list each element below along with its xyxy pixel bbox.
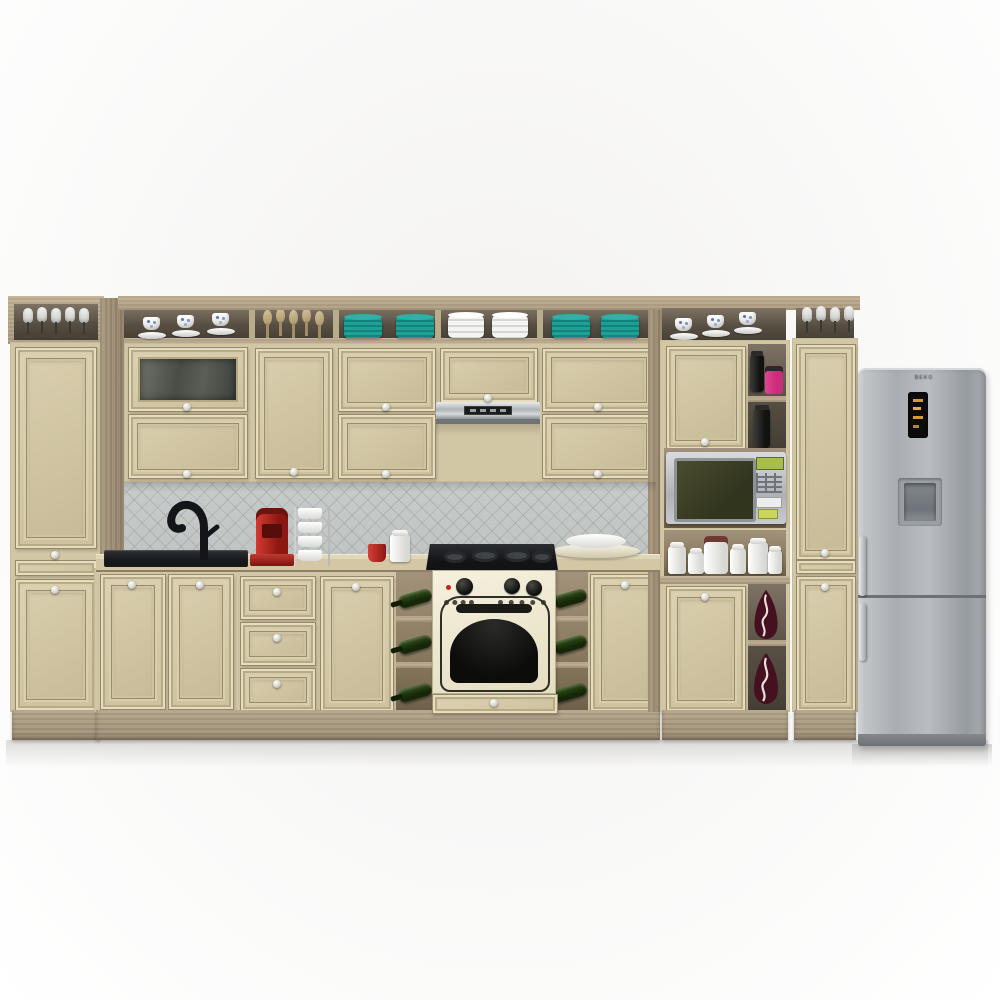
cabinet-knob (701, 593, 709, 601)
microwave-button (756, 497, 782, 508)
niche-shelf (748, 640, 786, 646)
teacup (702, 315, 730, 337)
drawer (240, 622, 316, 666)
display-segment (913, 425, 919, 428)
sink-base-door (168, 574, 234, 710)
tall-pantry-door (796, 344, 856, 560)
shelf-divider (435, 308, 441, 340)
white-bowl-stack (492, 315, 528, 338)
plinth (12, 710, 100, 740)
magenta-canister (765, 366, 783, 394)
cabinet-knob (382, 470, 390, 478)
burner (504, 549, 530, 562)
upper-single-door (255, 348, 333, 479)
water-dispenser (898, 478, 942, 526)
wine-glass (50, 308, 62, 338)
maroon-vase (751, 650, 781, 706)
sink-base-door (100, 574, 166, 710)
drawer (240, 576, 316, 620)
white-canister (730, 548, 746, 574)
white-canister (668, 546, 686, 574)
wine-glass (843, 306, 855, 336)
burner (472, 549, 498, 562)
teacup (670, 318, 698, 340)
shelf-divider (249, 308, 255, 340)
white-canister (768, 550, 782, 574)
wine-bottle (397, 588, 433, 610)
oven-knob (526, 580, 542, 596)
niche-shelf (748, 396, 786, 402)
display-segment (913, 416, 923, 419)
base-door (320, 576, 394, 712)
white-canister (688, 552, 704, 574)
kitchen-render: BEKO (0, 0, 1000, 1000)
shelf-board (660, 576, 790, 584)
oven-indicator-light (446, 585, 451, 590)
wine-rack (552, 570, 588, 712)
white-cup (298, 536, 322, 547)
wine-glass (829, 307, 841, 337)
wine-glass (815, 306, 827, 336)
plinth (794, 710, 856, 740)
rack-shelf (396, 616, 434, 622)
cabinet-knob (128, 581, 136, 589)
dispenser-recess (904, 483, 936, 521)
cabinet-knob (701, 438, 709, 446)
drawer-knob (273, 588, 281, 596)
upper-shelf-top-board (118, 296, 658, 310)
rack-shelf (396, 662, 434, 668)
hood-underside (436, 419, 540, 424)
drawer-knob (273, 680, 281, 688)
microwave-button-grid (756, 473, 782, 493)
shelf-divider (333, 308, 339, 340)
hood-buttons (470, 409, 506, 412)
teacup (172, 315, 200, 337)
wooden-spoon (302, 308, 311, 336)
cabinet-knob (51, 586, 59, 594)
white-cup (298, 508, 322, 519)
faucet (158, 490, 222, 560)
white-bowl-stack (448, 315, 484, 338)
wine-rack (396, 570, 434, 712)
left-tall-base-door (15, 579, 97, 711)
open-niche (748, 584, 786, 710)
teal-plate-stack (344, 317, 382, 338)
display-segment (913, 399, 923, 402)
microwave-start-button (758, 509, 778, 519)
wine-glass (78, 308, 90, 338)
fridge-floor-shadow (852, 744, 992, 766)
wooden-spoon (289, 310, 298, 338)
coffee-maker-base (250, 554, 294, 566)
wooden-spoon (276, 308, 285, 336)
wooden-spoon (315, 311, 324, 339)
microwave-window (674, 458, 756, 522)
tall-unit-rail (796, 560, 856, 574)
drawer-knob (490, 699, 498, 707)
floor-shadow (6, 740, 988, 768)
carcass-side-panel (100, 298, 124, 556)
maroon-vase (751, 588, 781, 640)
left-tall-cabinet-door (15, 347, 97, 549)
wooden-spoon (263, 310, 272, 338)
wine-bottle (552, 634, 588, 656)
plinth (662, 710, 788, 740)
cabinet-knob (821, 549, 829, 557)
cabinet-knob (382, 403, 390, 411)
wine-bottle (397, 634, 433, 656)
drawer (240, 668, 316, 712)
fridge-brand: BEKO (902, 375, 946, 381)
cabinet-knob (51, 551, 59, 559)
tall-unit-base-door (666, 586, 746, 712)
fridge-display (908, 392, 928, 438)
black-jar (754, 408, 770, 448)
cabinet-knob (290, 468, 298, 476)
wine-glass (36, 307, 48, 337)
wine-glass (22, 308, 34, 338)
wine-glass (801, 307, 813, 337)
cabinet-knob (183, 403, 191, 411)
oven-knob (504, 578, 520, 594)
hood-shadow (436, 424, 540, 436)
tall-unit-upper-door (666, 346, 746, 450)
drawer-knob (273, 634, 281, 642)
fridge-door-seam (858, 595, 986, 598)
white-canister (748, 542, 768, 574)
teacup (138, 317, 166, 339)
cabinet-knob (594, 470, 602, 478)
fridge-handle (859, 536, 866, 596)
fridge-handle (859, 603, 866, 661)
teal-plate-stack (601, 317, 639, 338)
microwave-display (756, 457, 784, 470)
cabinet-knob (821, 583, 829, 591)
black-jar (750, 354, 764, 392)
burner (444, 551, 466, 563)
oven-knob (456, 578, 473, 595)
open-niche (748, 344, 786, 448)
cup-stand (294, 506, 330, 566)
display-segment (913, 407, 921, 410)
teal-plate-stack (552, 317, 590, 338)
cabinet-knob (352, 583, 360, 591)
oven-door-handle (456, 604, 532, 613)
wine-glass (64, 307, 76, 337)
fridge-base (858, 734, 986, 746)
left-tall-unit-rail (15, 560, 97, 576)
teacup (207, 313, 235, 335)
cabinet-knob (196, 581, 204, 589)
teacup (734, 312, 762, 334)
wine-bottle (552, 588, 588, 610)
oven-door-glass (450, 619, 538, 683)
plinth (96, 710, 660, 740)
plate-stack (566, 534, 626, 548)
red-mug (368, 544, 386, 562)
cabinet-knob (484, 394, 492, 402)
wine-bottle (397, 682, 433, 704)
lidded-canister (704, 536, 728, 574)
cabinet-knob (594, 403, 602, 411)
rack-shelf (552, 616, 588, 622)
teal-plate-stack (396, 317, 434, 338)
coffee-maker-window (262, 524, 282, 538)
white-cup (298, 522, 322, 533)
burner (532, 551, 552, 563)
canister-shelf (664, 530, 786, 576)
cabinet-knob (183, 470, 191, 478)
rack-shelf (552, 662, 588, 668)
white-cup (298, 550, 322, 561)
cabinet-knob (621, 581, 629, 589)
shelf-divider (537, 308, 543, 340)
tall-unit-base-door (796, 576, 856, 712)
white-jar (390, 534, 410, 562)
